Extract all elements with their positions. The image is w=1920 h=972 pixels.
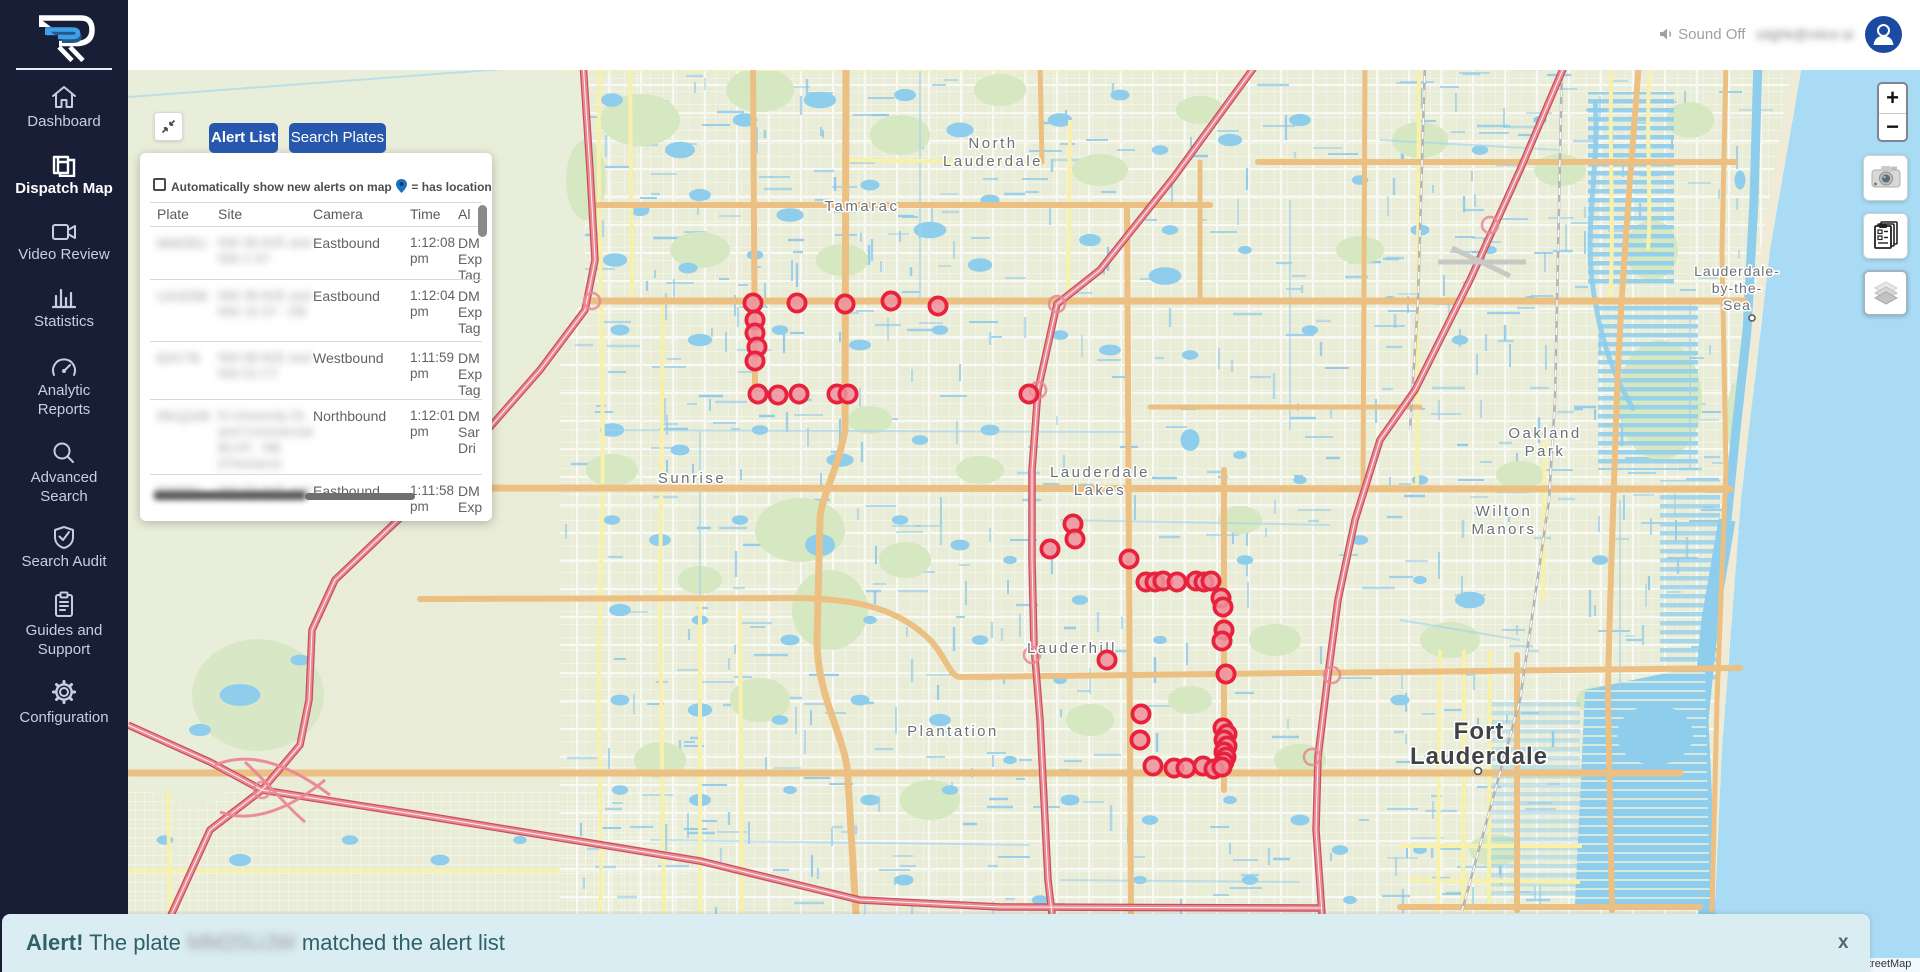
svg-text:Sea: Sea <box>1723 297 1751 313</box>
svg-text:Fort: Fort <box>1454 718 1505 745</box>
svg-text:North: North <box>968 135 1017 152</box>
svg-text:Lauderdale-: Lauderdale- <box>1694 263 1780 279</box>
svg-text:by-the-: by-the- <box>1712 280 1763 296</box>
svg-text:Lauderdale: Lauderdale <box>943 153 1043 170</box>
svg-text:Sunrise: Sunrise <box>658 470 726 487</box>
svg-text:Oakland: Oakland <box>1508 425 1581 442</box>
svg-text:Park: Park <box>1525 443 1566 460</box>
svg-text:Lauderdale: Lauderdale <box>1410 743 1548 770</box>
svg-text:Tamarac: Tamarac <box>824 198 899 215</box>
svg-text:Manors: Manors <box>1471 521 1536 538</box>
svg-text:Lakes: Lakes <box>1074 482 1127 499</box>
svg-text:Lauderdale: Lauderdale <box>1050 464 1150 481</box>
svg-text:Plantation: Plantation <box>907 723 999 740</box>
svg-text:Wilton: Wilton <box>1476 503 1533 520</box>
